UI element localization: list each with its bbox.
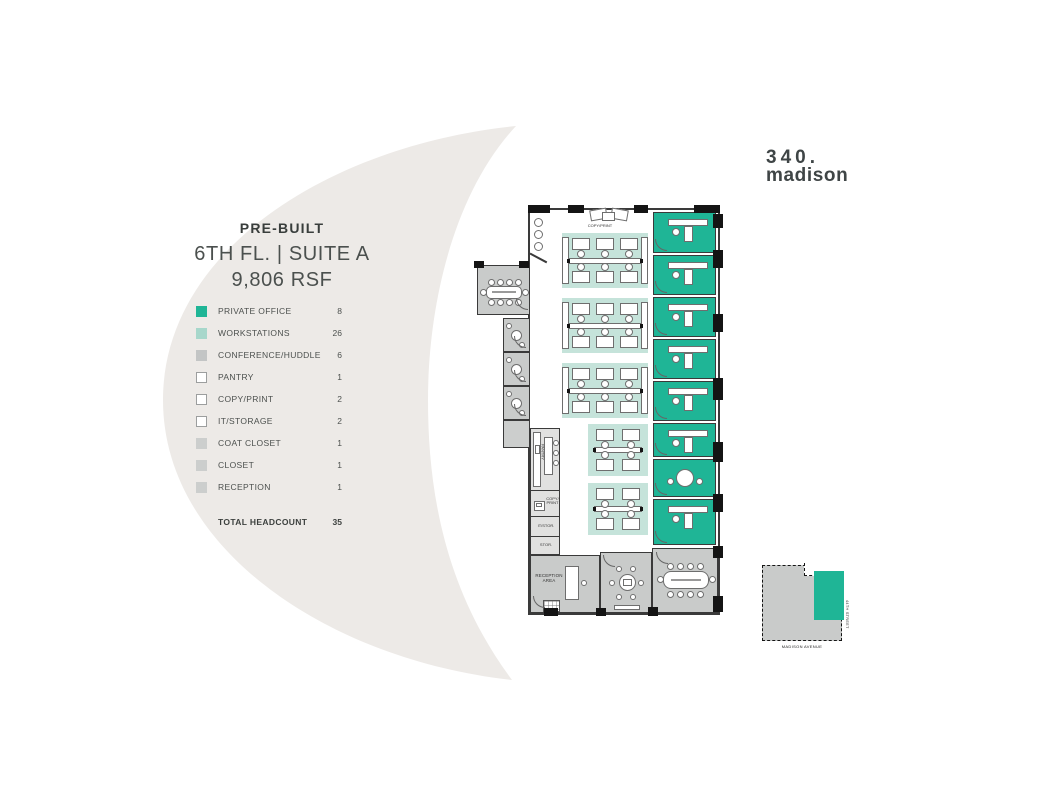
- office-desk: [668, 219, 708, 226]
- building-logo: 340. madison: [766, 148, 848, 185]
- table-inlay: [671, 579, 701, 581]
- legend-label: WORKSTATIONS: [218, 328, 333, 338]
- legend-count: 1: [337, 438, 342, 448]
- office-desk-return: [684, 437, 693, 453]
- chair: [672, 439, 680, 447]
- chair: [625, 315, 633, 323]
- wall-column: [713, 250, 723, 268]
- chair: [627, 451, 635, 459]
- legend-count: 1: [337, 460, 342, 470]
- chair: [480, 289, 487, 296]
- copier: [602, 212, 615, 221]
- power-block: [640, 259, 643, 263]
- legend-count: 26: [333, 328, 342, 338]
- wall-column: [634, 205, 648, 213]
- workstation-pod: [562, 233, 648, 288]
- chair: [601, 510, 609, 518]
- wall-column: [528, 205, 550, 213]
- pantry: PANTRY: [531, 429, 559, 491]
- legend-item: IT/STORAGE2: [196, 415, 342, 427]
- chair: [577, 328, 585, 336]
- chair: [672, 397, 680, 405]
- service-column: PANTRY COPY/PRINT IT/STOR. STOR.: [530, 428, 560, 555]
- conference-room: [652, 548, 718, 613]
- legend-swatch-icon: [196, 350, 207, 361]
- chair: [577, 250, 585, 258]
- wall-column: [713, 214, 723, 228]
- legend-item: PRIVATE OFFICE8: [196, 305, 342, 317]
- title-kicker: PRE-BUILT: [158, 220, 406, 236]
- wall-column: [474, 261, 484, 268]
- chair: [601, 315, 609, 323]
- legend-label: CONFERENCE/HUDDLE: [218, 350, 337, 360]
- pantry-label: PANTRY: [540, 444, 544, 460]
- chair: [515, 279, 522, 286]
- workstation-desk: [596, 336, 614, 348]
- chair: [601, 393, 609, 401]
- workstation-desk: [572, 336, 590, 348]
- copy-print-room: COPY/PRINT: [531, 491, 559, 517]
- stool: [553, 460, 559, 466]
- legend-label: PANTRY: [218, 372, 337, 382]
- wall-column: [713, 546, 723, 558]
- chair: [601, 441, 609, 449]
- power-block: [640, 448, 643, 452]
- door-arc: [655, 365, 667, 377]
- legend-item: RECEPTION1: [196, 481, 342, 493]
- huddle-room: [600, 552, 652, 613]
- page: 340. madison PRE-BUILT 6TH FL. | SUITE A…: [0, 0, 1049, 807]
- legend-total-count: 35: [333, 517, 342, 527]
- chair: [601, 328, 609, 336]
- legend-total-label: TOTAL HEADCOUNT: [218, 517, 333, 527]
- chair: [581, 580, 587, 586]
- legend-swatch-icon: [196, 372, 207, 383]
- legend-label: COAT CLOSET: [218, 438, 337, 448]
- door-arc: [603, 555, 615, 567]
- office-desk-return: [684, 353, 693, 369]
- wall-column: [713, 442, 723, 462]
- stool: [534, 242, 543, 251]
- legend-count: 2: [337, 416, 342, 426]
- workstation-desk: [620, 368, 638, 380]
- chair: [677, 591, 684, 598]
- chair: [497, 299, 504, 306]
- legend-item: CLOSET1: [196, 459, 342, 471]
- workstation-desk: [622, 459, 640, 471]
- legend-swatch-icon: [196, 328, 207, 339]
- workstation-desk: [620, 271, 638, 283]
- chair: [506, 391, 512, 397]
- workstation-desk: [620, 401, 638, 413]
- legend-rows: PRIVATE OFFICE8WORKSTATIONS26CONFERENCE/…: [196, 305, 342, 493]
- copy-print-label: COPY/PRINT: [545, 497, 560, 506]
- private-office-room: [653, 423, 716, 457]
- chair: [616, 594, 622, 600]
- it-storage-label: IT/STOR.: [533, 524, 559, 528]
- chair: [506, 357, 512, 363]
- wall-column: [713, 494, 723, 512]
- legend-item: COPY/PRINT2: [196, 393, 342, 405]
- workstation-desk: [596, 401, 614, 413]
- power-block: [567, 259, 570, 263]
- workstation-desk: [572, 238, 590, 250]
- key-plan: MADISON AVENUE 44TH STREET: [758, 562, 858, 654]
- office-desk-return: [684, 226, 693, 242]
- chair: [577, 393, 585, 401]
- workstation-pod: [562, 298, 648, 353]
- legend-label: PRIVATE OFFICE: [218, 306, 337, 316]
- wall-column: [713, 596, 723, 612]
- table-inlay: [623, 579, 632, 586]
- legend-label: CLOSET: [218, 460, 337, 470]
- chair: [506, 279, 513, 286]
- chair: [609, 580, 615, 586]
- door-arc: [655, 443, 667, 455]
- suite-highlight: [814, 571, 844, 620]
- copy-print-top-label: COPY/PRINT: [578, 224, 622, 228]
- workstation-desk: [620, 303, 638, 315]
- private-office-room: [653, 255, 716, 295]
- chair: [577, 380, 585, 388]
- chair: [709, 576, 716, 583]
- power-block: [640, 324, 643, 328]
- chair: [625, 263, 633, 271]
- table-inlay: [492, 291, 516, 293]
- wall-column: [568, 205, 584, 213]
- copier-detail: [536, 503, 542, 507]
- pantry-sink: [535, 445, 540, 454]
- workstation-desk: [572, 401, 590, 413]
- workstation-desk: [596, 271, 614, 283]
- reception-desk: [565, 566, 579, 600]
- legend-swatch-icon: [196, 438, 207, 449]
- door-arc: [533, 596, 545, 608]
- chair: [625, 380, 633, 388]
- legend-swatch-icon: [196, 460, 207, 471]
- legend-count: 8: [337, 306, 342, 316]
- office-desk: [668, 262, 708, 269]
- office-desk: [668, 506, 708, 513]
- chair: [506, 299, 513, 306]
- door-arc: [655, 531, 667, 543]
- power-block: [567, 324, 570, 328]
- chair: [638, 580, 644, 586]
- chair: [672, 228, 680, 236]
- legend-count: 2: [337, 394, 342, 404]
- chair: [601, 451, 609, 459]
- workstation-desk: [596, 429, 614, 441]
- legend-swatch-icon: [196, 416, 207, 427]
- legend-item: COAT CLOSET1: [196, 437, 342, 449]
- chair: [616, 566, 622, 572]
- power-block: [640, 507, 643, 511]
- stool: [534, 218, 543, 227]
- legend: PRIVATE OFFICE8WORKSTATIONS26CONFERENCE/…: [196, 305, 342, 527]
- chair: [630, 594, 636, 600]
- coat-closet: [503, 420, 530, 448]
- chair: [506, 323, 512, 329]
- private-office-room: [653, 499, 716, 545]
- wall-column: [713, 314, 723, 332]
- power-block: [593, 507, 596, 511]
- title-rsf: 9,806 RSF: [158, 269, 406, 292]
- workstation-desk: [572, 271, 590, 283]
- chair: [627, 500, 635, 508]
- stool: [534, 230, 543, 239]
- chair: [672, 271, 680, 279]
- chair: [687, 563, 694, 570]
- office-round-table: [676, 469, 694, 487]
- door-arc: [656, 552, 668, 564]
- office-desk: [668, 304, 708, 311]
- logo-line-madison: madison: [766, 166, 848, 185]
- legend-count: 6: [337, 350, 342, 360]
- chair: [696, 478, 703, 485]
- stool: [553, 450, 559, 456]
- chair: [672, 515, 680, 523]
- chair: [627, 441, 635, 449]
- chair: [697, 563, 704, 570]
- chair: [627, 510, 635, 518]
- legend-count: 1: [337, 372, 342, 382]
- chair: [687, 591, 694, 598]
- chair: [497, 279, 504, 286]
- chair: [630, 566, 636, 572]
- title-block: PRE-BUILT 6TH FL. | SUITE A 9,806 RSF: [158, 220, 406, 292]
- door-arc: [655, 323, 667, 335]
- workstation-desk: [596, 368, 614, 380]
- chair: [667, 591, 674, 598]
- page-title: 6TH FL. | SUITE A: [158, 243, 406, 266]
- office-desk-return: [684, 311, 693, 327]
- workstation-desk: [596, 518, 614, 530]
- door-arc: [655, 483, 667, 495]
- workstation-desk: [622, 429, 640, 441]
- workstation-pod: [588, 424, 648, 476]
- wall-column: [694, 205, 720, 213]
- workstation-desk: [620, 336, 638, 348]
- workstation-desk: [596, 459, 614, 471]
- chair: [667, 478, 674, 485]
- office-desk-return: [684, 395, 693, 411]
- chair: [601, 380, 609, 388]
- office-desk-return: [684, 513, 693, 529]
- chair: [488, 279, 495, 286]
- workstation-desk: [596, 238, 614, 250]
- power-block: [640, 389, 643, 393]
- workstation-desk: [596, 488, 614, 500]
- chair: [601, 500, 609, 508]
- street-label-44th: 44TH STREET: [845, 600, 849, 629]
- office-desk: [668, 430, 708, 437]
- pantry-island: [544, 437, 553, 475]
- office-desk: [668, 346, 708, 353]
- legend-count: 1: [337, 482, 342, 492]
- legend-swatch-icon: [196, 394, 207, 405]
- floor-plan: COPY/PRINT: [450, 200, 750, 625]
- private-office-room: [653, 381, 716, 421]
- storage-label: STOR.: [533, 543, 559, 547]
- private-office-room: [653, 339, 716, 379]
- door-arc: [655, 239, 667, 251]
- door-arc: [655, 281, 667, 293]
- street-label-madison: MADISON AVENUE: [760, 644, 844, 649]
- workstation-desk: [620, 238, 638, 250]
- power-block: [593, 448, 596, 452]
- legend-item: PANTRY1: [196, 371, 342, 383]
- stool: [553, 440, 559, 446]
- private-office-room: [653, 212, 716, 253]
- office-desk: [668, 388, 708, 395]
- chair: [601, 250, 609, 258]
- chair: [697, 591, 704, 598]
- workstation-desk: [572, 303, 590, 315]
- chair: [677, 563, 684, 570]
- legend-label: RECEPTION: [218, 482, 337, 492]
- wall-column: [544, 608, 558, 616]
- legend-swatch-icon: [196, 482, 207, 493]
- chair: [657, 576, 664, 583]
- it-storage-room: IT/STOR.: [531, 517, 559, 537]
- chair: [672, 355, 680, 363]
- wall-column: [713, 378, 723, 400]
- workstation-desk: [622, 488, 640, 500]
- chair: [625, 250, 633, 258]
- chair: [672, 313, 680, 321]
- storage-room: STOR.: [531, 537, 559, 556]
- reception-area: RECEPTION AREA: [530, 555, 600, 613]
- chair: [625, 328, 633, 336]
- legend-label: IT/STORAGE: [218, 416, 337, 426]
- legend-item: WORKSTATIONS26: [196, 327, 342, 339]
- workstation-desk: [572, 368, 590, 380]
- chair: [577, 315, 585, 323]
- power-block: [567, 389, 570, 393]
- chair: [488, 299, 495, 306]
- door-arc: [655, 407, 667, 419]
- workstation-pod: [588, 483, 648, 535]
- private-office-room: [653, 459, 716, 497]
- reception-label: RECEPTION AREA: [534, 573, 564, 583]
- chair: [577, 263, 585, 271]
- legend-label: COPY/PRINT: [218, 394, 337, 404]
- wall-column: [648, 607, 658, 616]
- wall-column: [519, 261, 529, 268]
- workstation-desk: [596, 303, 614, 315]
- chair: [625, 393, 633, 401]
- legend-total-row: TOTAL HEADCOUNT 35: [196, 517, 342, 527]
- office-desk-return: [684, 269, 693, 285]
- workstation-desk: [622, 518, 640, 530]
- wall-column: [596, 608, 606, 616]
- private-office-room: [653, 297, 716, 337]
- credenza: [614, 605, 640, 610]
- chair: [522, 289, 529, 296]
- chair: [601, 263, 609, 271]
- workstation-pod: [562, 363, 648, 418]
- chair: [667, 563, 674, 570]
- legend-item: CONFERENCE/HUDDLE6: [196, 349, 342, 361]
- legend-swatch-icon: [196, 306, 207, 317]
